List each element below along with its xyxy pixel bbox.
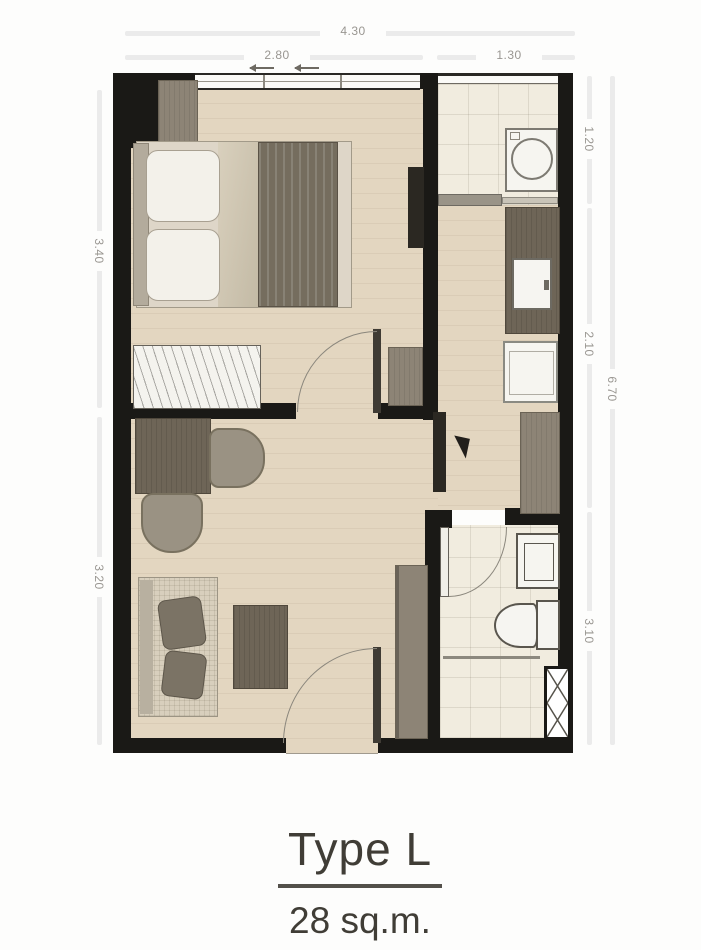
dim-label-right-balcony: 1.20 [580, 119, 598, 159]
dim-label-left-bedroom: 3.40 [90, 231, 108, 271]
kitchen-tall-cabinet [520, 412, 560, 514]
dim-label-right-kitchen: 2.10 [580, 324, 598, 364]
sofa-backrest [140, 580, 153, 714]
floor-plan-image: 4.30 2.80 1.30 3.40 3.20 1.20 2.10 3.10 … [0, 0, 701, 950]
dim-line-right-total [610, 76, 615, 745]
bedroom-window [195, 73, 420, 90]
bed-duvet [258, 142, 338, 307]
dim-label-left-living: 3.20 [90, 557, 108, 597]
dim-label-right-bathroom: 3.10 [580, 611, 598, 651]
coffee-table [233, 605, 288, 689]
dim-label-right-total: 6.70 [603, 369, 621, 409]
window-mullion-icon [340, 75, 342, 88]
kitchen-sink [512, 258, 552, 310]
refrigerator-door-line [509, 351, 554, 395]
washer-drum-icon [511, 138, 553, 180]
washing-machine [505, 128, 558, 192]
window-slide-arrow-icon [295, 59, 319, 69]
balcony-railing [438, 73, 558, 84]
south-wall-right [378, 738, 573, 753]
balcony-sliding-door [438, 194, 502, 206]
washer-control-icon [510, 132, 520, 140]
living-tv-panel [433, 412, 446, 492]
pillow [146, 229, 220, 301]
toilet-bowl [494, 603, 538, 648]
pillow [146, 150, 220, 222]
west-wall [113, 73, 131, 753]
desk [135, 418, 211, 494]
balcony-door-track [502, 197, 558, 204]
desk-chair [209, 428, 265, 488]
refrigerator [503, 341, 558, 403]
toilet-tank [536, 600, 560, 650]
shower-glass-partition [443, 656, 540, 659]
unit-type-text: Type L [278, 822, 442, 888]
dim-label-top-balcony: 1.30 [476, 48, 542, 62]
stool [141, 493, 203, 553]
window-slide-arrow-icon [250, 59, 274, 69]
service-shaft [544, 666, 571, 740]
bathroom-door-leaf [440, 527, 449, 597]
sofa-cushion [160, 650, 207, 701]
bedroom-wardrobe [158, 80, 198, 148]
bedroom-side-cabinet [388, 347, 423, 406]
bed-blanket-fold [218, 142, 262, 307]
window-mullion-icon [263, 75, 265, 88]
bedroom-tv-panel [408, 167, 424, 248]
bathroom-vanity [516, 533, 560, 589]
unit-area-label: 28 sq.m. [230, 900, 490, 942]
sofa-cushion [157, 595, 208, 651]
unit-type-title: Type L [230, 822, 490, 888]
south-wall-left [113, 738, 286, 753]
vanity-basin-icon [524, 543, 554, 581]
dim-label-top-total: 4.30 [320, 24, 386, 38]
sink-tap-icon [544, 280, 549, 290]
bathroom-door-nub [425, 510, 452, 528]
bedroom-east-wall [423, 73, 438, 420]
shaft-cross-hatch-icon [547, 669, 568, 737]
entry-cabinet [395, 565, 428, 739]
east-wall [558, 73, 573, 753]
bedroom-closet [133, 345, 261, 409]
